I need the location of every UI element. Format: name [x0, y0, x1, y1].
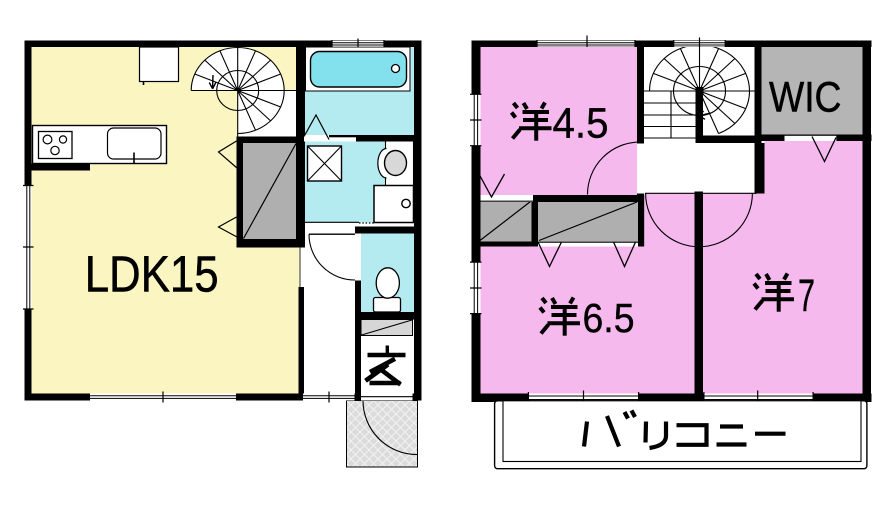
svg-text:LDK15: LDK15: [85, 245, 219, 302]
svg-text:4.5: 4.5: [553, 100, 609, 148]
svg-text:7: 7: [798, 270, 815, 321]
svg-text:6.5: 6.5: [583, 295, 635, 341]
svg-text:WIC: WIC: [769, 75, 842, 122]
